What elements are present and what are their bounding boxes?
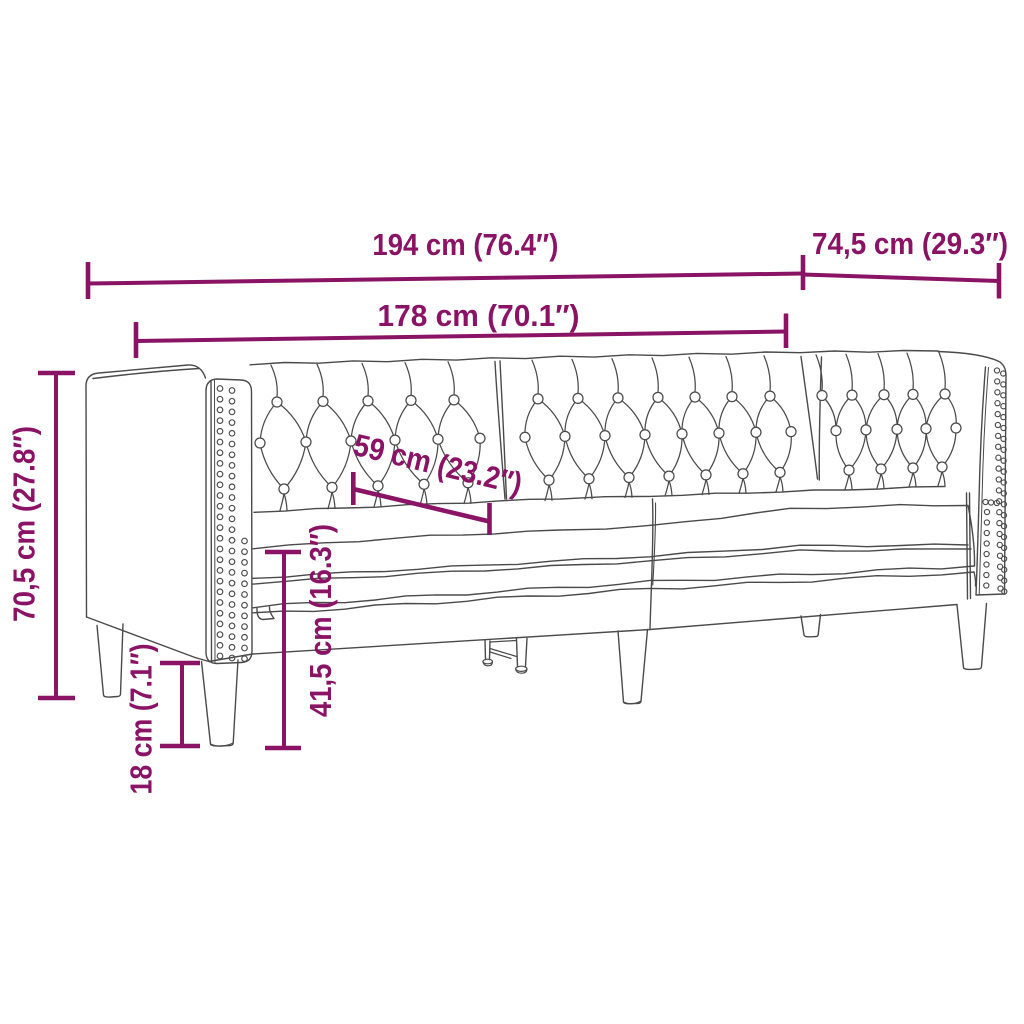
svg-text:74,5 cm (29.3″): 74,5 cm (29.3″) bbox=[812, 226, 1008, 261]
svg-text:70,5 cm (27.8″): 70,5 cm (27.8″) bbox=[7, 426, 42, 622]
svg-text:41,5 cm (16.3″): 41,5 cm (16.3″) bbox=[303, 524, 338, 717]
svg-text:178 cm (70.1″): 178 cm (70.1″) bbox=[378, 298, 580, 333]
svg-text:18 cm (7.1″): 18 cm (7.1″) bbox=[124, 644, 159, 795]
svg-text:194 cm (76.4″): 194 cm (76.4″) bbox=[372, 227, 558, 262]
